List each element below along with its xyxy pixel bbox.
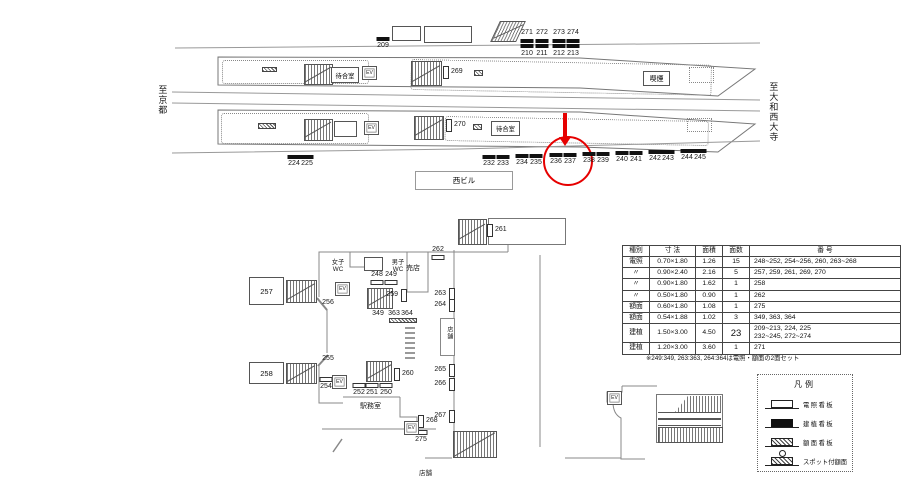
shop-bottom-label: 店舗	[419, 470, 432, 477]
sign-label-240: 240	[616, 156, 628, 163]
lg-face-icon	[765, 434, 799, 447]
sign-table-head: 種別寸 法面積面数番 号	[623, 246, 901, 257]
concourse-stairs-258	[286, 363, 317, 384]
table-cell-numbers: 248~252, 254~256, 260, 263~268	[750, 257, 901, 268]
east-entrance-escalator	[675, 396, 721, 412]
table-row: 建植1.50×3.004.5023209~213, 224, 225 232~2…	[623, 324, 901, 343]
table-header: 番 号	[750, 246, 901, 257]
table-cell-count: 5	[723, 268, 750, 279]
sign-label-262: 262	[432, 246, 444, 253]
table-cell-count: 15	[723, 257, 750, 268]
sign-bar-252	[353, 383, 366, 388]
table-cell-area: 0.90	[696, 290, 723, 301]
sign-label-261: 261	[495, 226, 507, 233]
sign-label-273: 273	[553, 29, 565, 36]
concourse-stairs-260	[366, 361, 392, 382]
table-header: 面数	[723, 246, 750, 257]
table-cell-size: 0.90×1.80	[650, 279, 696, 290]
sign-label-233: 233	[497, 160, 509, 167]
platform2-room	[334, 121, 357, 137]
sign-label-242: 242	[649, 155, 661, 162]
sign-bar-235	[530, 154, 543, 158]
sign-label-271: 271	[521, 29, 533, 36]
sign-bar-232	[483, 155, 496, 159]
sign-bar-248	[371, 280, 384, 285]
elevator-box-0: EV	[362, 66, 377, 80]
sign-bar-262	[432, 255, 445, 260]
sign-label-212: 212	[553, 50, 565, 57]
sign-bar-240	[616, 151, 629, 155]
sign-bar-251	[366, 383, 379, 388]
table-header: 寸 法	[650, 246, 696, 257]
elevator-box-4: EV	[404, 421, 419, 435]
table-cell-area: 2.16	[696, 268, 723, 279]
shop-label: 店舗	[445, 326, 452, 340]
sign-label-363: 363	[388, 310, 400, 317]
corridor-bottom-stairs	[453, 431, 497, 458]
legend-box: 凡例 電照看板建植看板額面看板スポット付額面	[757, 374, 853, 472]
sign-bar-234	[516, 154, 529, 158]
sign-bracket-266	[449, 378, 455, 391]
sign-label-234: 234	[516, 159, 528, 166]
sign-label-244: 244	[681, 154, 693, 161]
sign-label-263: 263	[434, 290, 446, 297]
sign-bar-243	[662, 150, 675, 154]
lg-illum-icon	[765, 396, 799, 409]
table-cell-size: 1.50×3.00	[650, 324, 696, 343]
sign-label-265: 265	[434, 366, 446, 373]
sign-spec-table: 種別寸 法面積面数番 号 電照0.70×1.801.2615248~252, 2…	[622, 245, 901, 355]
legend-label: 電照看板	[803, 400, 834, 409]
sign-label-252: 252	[353, 389, 365, 396]
table-cell-area: 1.02	[696, 312, 723, 323]
table-cell-count: 23	[723, 324, 750, 343]
sign-label-224: 224	[288, 160, 300, 167]
sign-bar-210	[521, 44, 534, 48]
women-wc-label: 女子 WC	[328, 259, 348, 273]
sign-bar-233	[497, 155, 510, 159]
sign-label-274: 274	[567, 29, 579, 36]
sign-bar-254	[320, 377, 333, 382]
legend-label: スポット付額面	[803, 457, 847, 466]
sign-bar-245	[694, 149, 707, 153]
table-cell-numbers: 262	[750, 290, 901, 301]
table-cell-count: 1	[723, 301, 750, 312]
sign-label-272: 272	[536, 29, 548, 36]
sign-bar-209	[377, 37, 390, 41]
table-cell-numbers: 257, 259, 261, 269, 270	[750, 268, 901, 279]
sign-bar-271	[521, 39, 534, 43]
sign-bar-239	[597, 152, 610, 156]
sign-bracket-261	[487, 224, 493, 237]
sign-label-254: 254	[320, 383, 332, 390]
table-header: 種別	[623, 246, 650, 257]
table-row: 〃0.50×1.800.901262	[623, 290, 901, 301]
sign-label-210: 210	[521, 50, 533, 57]
sign-bar-211	[536, 44, 549, 48]
station-office-label: 駅務室	[360, 403, 381, 411]
building-block	[424, 26, 472, 43]
sign-label-237: 237	[564, 158, 576, 165]
table-cell-type: 〃	[623, 279, 650, 290]
table-cell-type: 〃	[623, 268, 650, 279]
sign-bar-242	[649, 150, 662, 154]
sign-label-243: 243	[662, 155, 674, 162]
sign-label-264: 264	[434, 301, 446, 308]
sign-bracket-270	[446, 119, 452, 132]
sign-label-364: 364	[401, 310, 413, 317]
legend-item: 建植看板	[765, 416, 852, 428]
sign-bar-238	[583, 152, 596, 156]
sign-label-259: 259	[386, 291, 398, 298]
sign-bar-250	[380, 383, 393, 388]
table-cell-type: 額面	[623, 301, 650, 312]
table-cell-area: 4.50	[696, 324, 723, 343]
sign-bar-272	[536, 39, 549, 43]
table-cell-numbers: 349, 363, 364	[750, 312, 901, 323]
sign-label-349: 349	[372, 310, 384, 317]
table-row: 電照0.70×1.801.2615248~252, 254~256, 260, …	[623, 257, 901, 268]
building-block	[392, 26, 421, 41]
table-row: 額面0.60×1.801.081275	[623, 301, 901, 312]
platform1-face-sign	[262, 67, 277, 72]
legend-label: 建植看板	[803, 419, 834, 428]
sign-bar-213	[567, 44, 580, 48]
east-entrance-stairs	[658, 427, 723, 443]
sign-label-238: 238	[583, 157, 595, 164]
sign-label-235: 235	[530, 159, 542, 166]
sign-label-241: 241	[630, 156, 642, 163]
table-cell-type: 額面	[623, 312, 650, 323]
sign-label-249: 249	[385, 271, 397, 278]
platform1-smoking-area: 喫煙	[643, 71, 670, 86]
sign-label-236: 236	[550, 158, 562, 165]
sign-table-body: 電照0.70×1.801.2615248~252, 254~256, 260, …	[623, 257, 901, 354]
sign-bracket-259	[401, 289, 407, 302]
sign-bar-241	[630, 151, 643, 155]
sign-label-275: 275	[415, 436, 427, 443]
table-cell-type: 電照	[623, 257, 650, 268]
legend-items: 電照看板建植看板額面看板スポット付額面	[758, 397, 852, 466]
sign-bar-237	[564, 153, 577, 157]
table-cell-area: 1.08	[696, 301, 723, 312]
sign-label-245: 245	[694, 154, 706, 161]
sign-label-268: 268	[426, 417, 438, 424]
table-row: 額面0.54×1.881.023349, 363, 364	[623, 312, 901, 323]
sign-bracket-260	[394, 368, 400, 381]
legend-item: スポット付額面	[765, 454, 852, 466]
highlight-arrow	[563, 113, 567, 137]
sign-bar-225	[301, 155, 314, 159]
sign-label-260: 260	[402, 370, 414, 377]
kiosk-label: 売店	[406, 265, 420, 273]
sign-label-266: 266	[434, 380, 446, 387]
platform2-face-sign	[473, 124, 482, 130]
elevator-box-2: EV	[335, 282, 350, 296]
sign-bar-212	[553, 44, 566, 48]
table-cell-type: 建植	[623, 324, 650, 343]
table-cell-numbers: 275	[750, 301, 901, 312]
legend-item: 額面看板	[765, 435, 852, 447]
sign-label-213: 213	[567, 50, 579, 57]
sign-bar-273	[553, 39, 566, 43]
sign-bar-224	[288, 155, 301, 159]
lg-spot-icon	[765, 453, 799, 466]
table-footnote: ※249:349, 263:363, 264:364は電照・額面の2面セット	[646, 353, 799, 362]
table-cell-area: 1.62	[696, 279, 723, 290]
east-entrance-stairs-block	[656, 394, 723, 443]
platform1-stairs-west	[304, 64, 333, 85]
platform1-stairs-east	[411, 61, 442, 86]
east-entrance-rail	[658, 412, 721, 419]
station-sign-location-map: 至京都 至大和西大寺 待合室 喫煙 待合室 西ビル 女子 WC 男子 WC 売店…	[0, 0, 919, 491]
lg-stand-icon	[765, 415, 799, 428]
direction-to-yamato-saidaiji: 至大和西大寺	[768, 82, 778, 142]
table-cell-type: 〃	[623, 290, 650, 301]
legend-title: 凡例	[758, 379, 852, 390]
sign-bar-249	[385, 280, 398, 285]
table-cell-size: 0.50×1.80	[650, 290, 696, 301]
table-cell-area: 1.26	[696, 257, 723, 268]
table-cell-size: 0.70×1.80	[650, 257, 696, 268]
sign-label-248: 248	[371, 271, 383, 278]
elevator-box-1: EV	[364, 121, 379, 135]
legend-item: 電照看板	[765, 397, 852, 409]
legend-label: 額面看板	[803, 438, 834, 447]
sign-bracket-265	[449, 364, 455, 377]
east-entrance-rail	[658, 419, 721, 426]
passage-steps	[405, 325, 415, 359]
platform2-face-sign	[258, 123, 276, 129]
elevator-box-3: EV	[332, 375, 347, 389]
table-row: 〃0.90×1.801.621258	[623, 279, 901, 290]
sign-label-250: 250	[380, 389, 392, 396]
sign-label-209: 209	[377, 42, 389, 49]
room-258: 258	[249, 362, 284, 384]
table-header: 面積	[696, 246, 723, 257]
shop-box: 店舗	[440, 318, 455, 356]
platform1-zone-tip	[689, 67, 714, 83]
sign-bracket-264	[449, 299, 455, 312]
sign-label-239: 239	[597, 157, 609, 164]
platform1-face-sign	[474, 70, 483, 76]
sign-bracket-267	[449, 410, 455, 423]
table-cell-numbers: 209~213, 224, 225 232~245, 272~274	[750, 324, 901, 343]
sign-label-251: 251	[366, 389, 378, 396]
sign-label-269: 269	[451, 68, 463, 75]
platform2-waiting-room: 待合室	[491, 121, 520, 136]
table-cell-size: 0.90×2.40	[650, 268, 696, 279]
sign-label-211: 211	[536, 50, 547, 57]
sign-bar-236	[550, 153, 563, 157]
platform2-stairs-east	[414, 116, 444, 140]
west-building: 西ビル	[415, 171, 513, 190]
table-cell-size: 0.54×1.88	[650, 312, 696, 323]
table-cell-count: 3	[723, 312, 750, 323]
table-cell-numbers: 258	[750, 279, 901, 290]
sign-label-232: 232	[483, 160, 495, 167]
table-cell-count: 1	[723, 279, 750, 290]
elevator-box-5: EV	[607, 391, 622, 405]
direction-to-kyoto: 至京都	[157, 85, 167, 115]
sign-label-225: 225	[301, 160, 313, 167]
table-cell-size: 0.60×1.80	[650, 301, 696, 312]
concourse-stairs-261	[458, 219, 487, 245]
concourse-stairs-257	[286, 280, 317, 303]
face-sign-363-364	[389, 318, 417, 323]
sign-bar-244	[681, 149, 694, 153]
platform2-stairs-west	[304, 119, 333, 141]
platform2-zone-tip	[687, 118, 712, 132]
sign-bar-274	[567, 39, 580, 43]
table-row: 〃0.90×2.402.165257, 259, 261, 269, 270	[623, 268, 901, 279]
sign-label-256: 256	[322, 299, 334, 306]
sign-label-270: 270	[454, 121, 466, 128]
table-cell-count: 1	[723, 290, 750, 301]
room-257: 257	[249, 277, 284, 305]
sign-label-255: 255	[322, 355, 334, 362]
concourse-room	[364, 257, 383, 271]
sign-bracket-269	[443, 66, 449, 79]
platform1-waiting-room: 待合室	[331, 67, 359, 83]
